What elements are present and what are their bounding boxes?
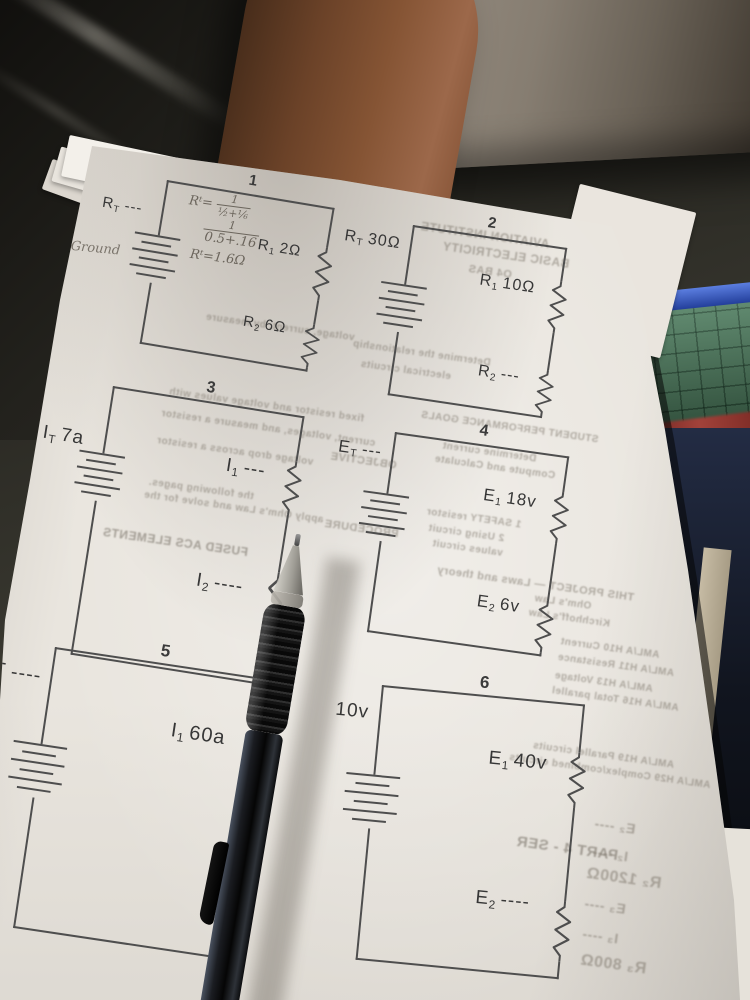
total-label: RT---: [101, 194, 144, 218]
circuit-2: 2 RT30Ω R110Ω R2---: [388, 225, 568, 418]
wire-left: [373, 685, 384, 775]
wire-right: [326, 208, 335, 248]
wire-right: [305, 368, 308, 372]
ghost-text: E₃ ----: [583, 895, 627, 917]
pen-cone: [273, 543, 311, 596]
handwritten-calculation: Rᵗ=1½+⅙ 10.5+.16 Rᵗ=1.6Ω: [181, 188, 319, 278]
current-2-label: I2----: [195, 570, 245, 600]
wire-left: [41, 647, 57, 744]
wire-right: [578, 704, 585, 752]
resistor-symbol: [548, 491, 571, 545]
ghost-text: I₃ ----: [581, 926, 619, 947]
battery-symbol: [6, 740, 67, 801]
circuit-4: 4 ET--- E118v E26v: [367, 432, 569, 657]
wire-right: [539, 652, 542, 656]
ghost-text: E₂ ----: [593, 815, 636, 837]
ghost-text: R₃ 800Ω: [579, 951, 647, 978]
total-label: IT7a: [41, 422, 86, 451]
circuit-1: 1 RT--- R12Ω R26Ω Rᵗ=1½+⅙ 10.5+.16: [140, 180, 335, 372]
voltage-2-label: E2----: [474, 887, 530, 915]
total-label: RT30Ω: [343, 227, 402, 254]
wire-bottom: [367, 630, 542, 656]
resistor-2-label: R2---: [477, 362, 521, 387]
wire-left: [140, 283, 152, 344]
photo-scene: AVIATION INSTITUTE BASIC ELECTRICITY O4 …: [0, 0, 750, 1000]
wire-right: [313, 300, 319, 324]
total-label: T----: [0, 658, 43, 689]
resistor-symbol: [280, 460, 304, 516]
battery-symbol: [374, 281, 427, 335]
resistor-1-label: R110Ω: [478, 272, 536, 299]
resistor-2-label: R26Ω: [242, 313, 288, 338]
resistor-symbol: [299, 323, 322, 369]
battery-symbol: [357, 490, 409, 544]
wire-bottom: [140, 342, 308, 372]
resistor-symbol: [551, 901, 573, 962]
wire-left: [404, 225, 415, 285]
resistor-symbol: [533, 369, 556, 417]
current-1-label: I160a: [169, 719, 227, 751]
resistor-symbol: [546, 280, 570, 334]
circuit-6: 6 10v E140v E2----: [356, 685, 586, 979]
voltage-1-label: E140v: [487, 748, 548, 776]
resistor-symbol: [533, 600, 556, 654]
current-2-label: [194, 871, 203, 895]
wire-left: [13, 797, 34, 928]
wire-bottom: [13, 926, 231, 960]
circuit-number: 3: [114, 364, 308, 412]
ghost-text: R₂ 1200Ω: [585, 865, 662, 893]
wire-right: [562, 456, 569, 492]
wire-left: [367, 541, 382, 632]
voltage-1-label: E118v: [482, 485, 538, 513]
current-1-label: I1---: [224, 455, 267, 483]
resistor-symbol: [310, 246, 335, 302]
pen-tip-icon: [294, 534, 301, 546]
wire-left: [356, 828, 371, 960]
wire-right: [547, 333, 555, 371]
wire-bottom: [356, 958, 559, 980]
battery-symbol: [72, 450, 125, 505]
battery-symbol: [127, 231, 180, 286]
ground-note: Ground: [70, 239, 121, 259]
wire-left: [158, 180, 169, 236]
voltage-2-label: E26v: [476, 591, 522, 618]
wire-right: [557, 961, 561, 979]
battery-symbol: [341, 772, 400, 831]
resistor-symbol: [566, 751, 587, 808]
wire-left: [102, 386, 115, 453]
